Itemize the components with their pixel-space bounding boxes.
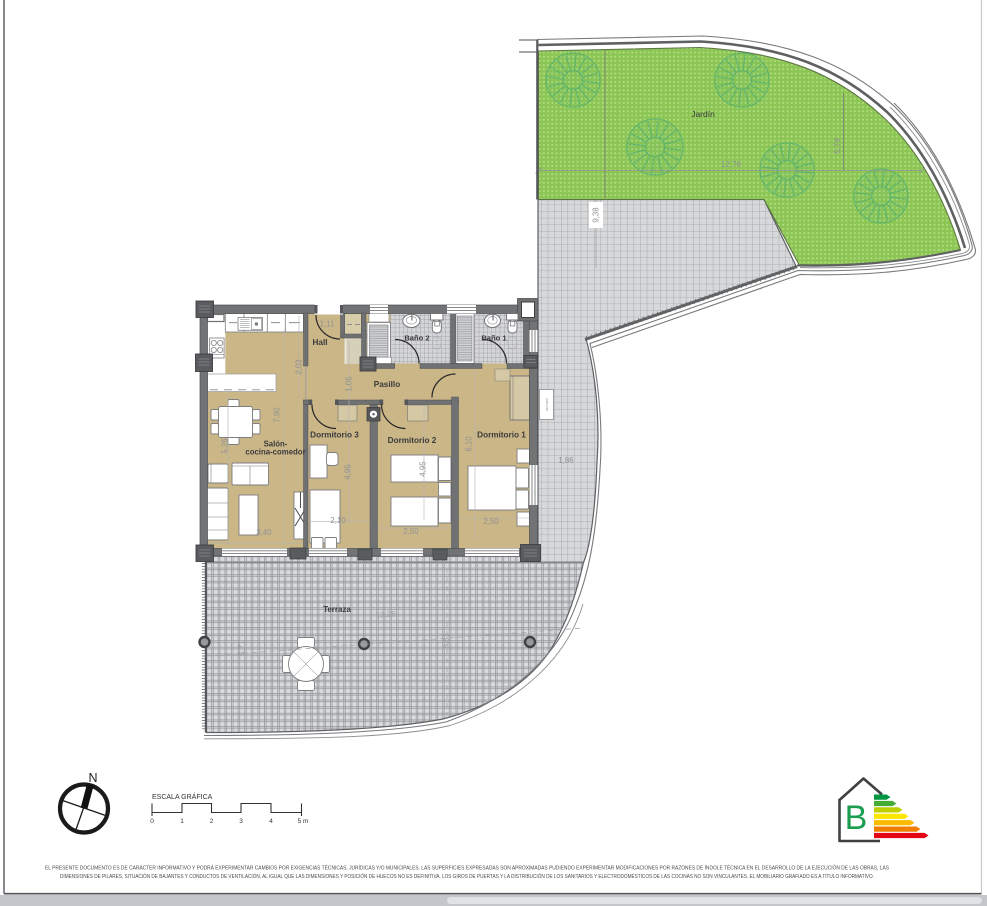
svg-text:Hall: Hall xyxy=(312,338,327,347)
svg-text:cocina-comedor: cocina-comedor xyxy=(245,448,305,457)
svg-text:B: B xyxy=(845,799,868,837)
svg-text:0: 0 xyxy=(150,818,154,825)
svg-text:Dormitorio 3: Dormitorio 3 xyxy=(310,431,359,440)
svg-text:4,95: 4,95 xyxy=(419,461,428,477)
svg-text:Dormitorio 2: Dormitorio 2 xyxy=(388,436,437,445)
svg-text:ESCALA GRÁFICA: ESCALA GRÁFICA xyxy=(152,792,213,801)
svg-text:5 m: 5 m xyxy=(298,818,309,825)
svg-text:5,26: 5,26 xyxy=(221,438,230,453)
svg-text:2: 2 xyxy=(210,818,214,825)
svg-text:DIMENSIONES DE PILARES, SITUAC: DIMENSIONES DE PILARES, SITUACIÓN DE BAJ… xyxy=(60,873,874,880)
svg-text:1,86: 1,86 xyxy=(558,456,573,465)
svg-text:Baño 2: Baño 2 xyxy=(404,334,429,343)
svg-text:4,95: 4,95 xyxy=(344,464,353,480)
svg-text:12,76: 12,76 xyxy=(721,160,742,169)
svg-text:3,40: 3,40 xyxy=(256,528,272,537)
svg-text:5,71: 5,71 xyxy=(238,640,247,655)
svg-text:ascensor: ascensor xyxy=(545,397,549,411)
svg-text:2,50: 2,50 xyxy=(403,527,419,536)
svg-text:3: 3 xyxy=(239,818,243,825)
svg-text:Jardín: Jardín xyxy=(691,109,715,119)
svg-text:2,03: 2,03 xyxy=(295,359,304,374)
svg-text:1,05: 1,05 xyxy=(345,376,354,392)
svg-text:5,53: 5,53 xyxy=(441,633,451,649)
svg-text:12,26: 12,26 xyxy=(376,609,396,619)
svg-text:1,11: 1,11 xyxy=(320,320,335,329)
svg-text:EL PRESENTE DOCUMENTO ES DE CA: EL PRESENTE DOCUMENTO ES DE CARÁCTER INF… xyxy=(45,865,889,872)
svg-text:Baño 1: Baño 1 xyxy=(481,334,507,343)
svg-text:6,10: 6,10 xyxy=(465,436,474,452)
svg-text:7,90: 7,90 xyxy=(273,407,282,423)
svg-text:1: 1 xyxy=(180,818,184,825)
svg-text:9,38: 9,38 xyxy=(592,207,601,222)
svg-text:2,10: 2,10 xyxy=(330,516,346,525)
svg-text:5,79: 5,79 xyxy=(833,138,842,154)
svg-text:4: 4 xyxy=(269,818,273,825)
svg-text:N: N xyxy=(88,771,97,785)
svg-text:Dormitorio 1: Dormitorio 1 xyxy=(477,431,526,440)
svg-text:Terraza: Terraza xyxy=(323,605,351,614)
svg-text:Pasillo: Pasillo xyxy=(374,380,400,389)
svg-text:2,50: 2,50 xyxy=(483,517,499,526)
